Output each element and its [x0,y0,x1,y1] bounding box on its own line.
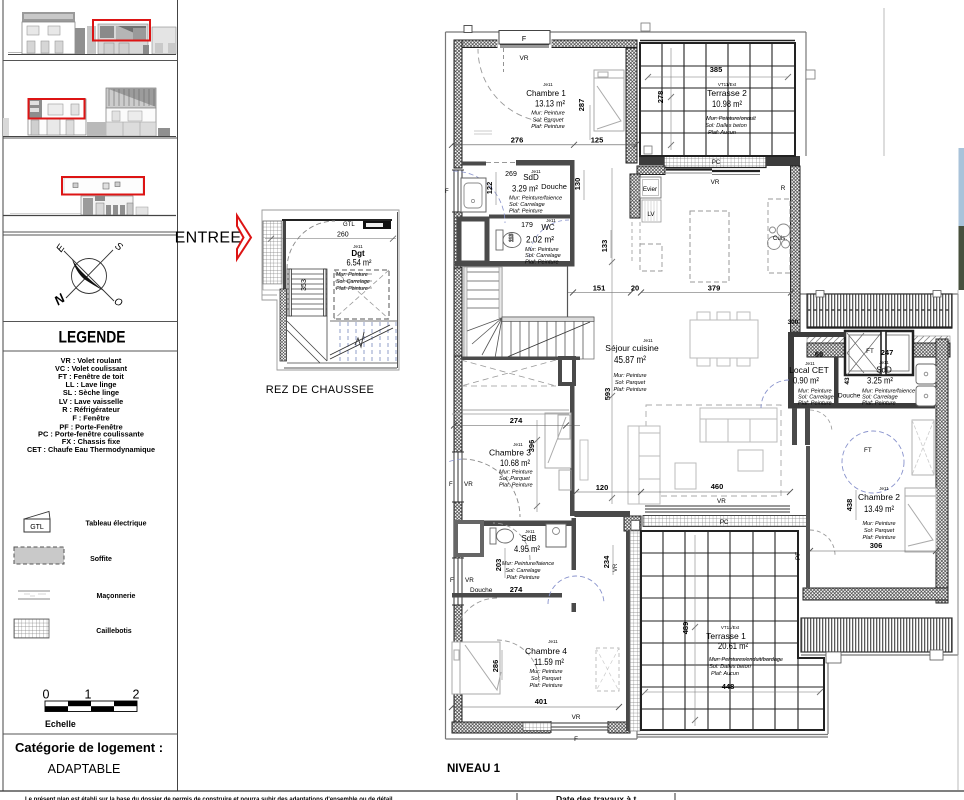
svg-text:Plaf: Peinture: Plaf: Peinture [862,401,896,407]
svg-text:247: 247 [881,348,894,357]
svg-text:Plaf: Peinture: Plaf: Peinture [525,260,559,266]
svg-text:10.98 m²: 10.98 m² [712,99,742,110]
svg-text:130: 130 [573,178,582,191]
svg-text:SL : Sèche linge: SL : Sèche linge [63,388,119,397]
svg-text:Sol: Dalles beton: Sol: Dalles beton [709,664,751,670]
svg-text:Je11: Je11 [879,360,889,365]
svg-text:401: 401 [535,697,548,706]
svg-text:385: 385 [710,65,723,74]
svg-text:43: 43 [844,377,851,385]
svg-text:274: 274 [510,585,523,594]
svg-text:FT: FT [864,447,872,454]
svg-text:Sol: Carrelage: Sol: Carrelage [509,202,545,208]
svg-text:Chambre 2: Chambre 2 [858,492,900,502]
svg-text:Plaf: Aucun: Plaf: Aucun [711,671,739,677]
svg-text:276: 276 [511,136,524,145]
svg-text:68: 68 [815,350,823,359]
svg-text:Plaf: Peinture: Plaf: Peinture [798,401,832,407]
svg-text:F: F [445,189,449,195]
svg-text:Sol:,Parquet: Sol:,Parquet [499,476,530,482]
svg-text:Douche: Douche [470,587,493,594]
svg-text:Sol: Parquet: Sol: Parquet [531,676,562,682]
svg-text:Mur: Peinture/ondult: Mur: Peinture/ondult [706,116,756,122]
svg-text:Sol: Carrelage: Sol: Carrelage [505,568,540,574]
svg-text:3.29 m²: 3.29 m² [512,184,538,195]
svg-text:133: 133 [600,240,609,253]
svg-text:VT11/Ext: VT11/Ext [721,625,740,630]
svg-text:F: F [450,578,454,584]
svg-text:Mur: Peinture: Mur: Peinture [862,521,895,527]
svg-text:Chambre 3: Chambre 3 [489,448,531,458]
svg-text:PC: PC [720,520,729,526]
svg-text:3.25 m²: 3.25 m² [867,376,893,387]
svg-text:Terrasse 1: Terrasse 1 [706,631,746,641]
svg-text:Sol: Carrelage: Sol: Carrelage [336,279,370,285]
svg-text:Plaf: Peinture: Plaf: Peinture [506,575,539,581]
svg-text:45.87 m²: 45.87 m² [614,355,647,366]
svg-text:Tableau électrique: Tableau électrique [86,521,147,528]
svg-text:Cuis.: Cuis. [773,235,788,242]
svg-text:13.49 m²: 13.49 m² [864,504,894,515]
svg-text:Plaf: Peinture: Plaf: Peinture [613,387,646,393]
svg-text:VR: VR [464,481,473,488]
svg-text:274: 274 [510,416,523,425]
svg-text:179: 179 [521,222,533,229]
svg-text:Terrasse 2: Terrasse 2 [707,88,747,98]
svg-text:Plaf: Peinture: Plaf: Peinture [531,124,565,130]
svg-text:GTL: GTL [30,524,44,531]
svg-text:FT: FT [866,348,874,355]
svg-text:VT11/Ext: VT11/Ext [718,82,737,87]
svg-text:ADAPTABLE: ADAPTABLE [48,762,121,776]
svg-text:SdD: SdD [523,173,539,182]
svg-text:F: F [449,482,453,488]
svg-text:2.02 m²: 2.02 m² [526,235,554,246]
svg-text:0: 0 [43,688,50,702]
svg-text:R: R [781,185,786,192]
svg-text:203: 203 [494,559,503,572]
svg-text:LV: LV [647,211,655,218]
svg-text:Je11: Je11 [879,486,889,491]
svg-text:Sol: Parquet: Sol: Parquet [533,118,564,124]
svg-text:Mur: Peinture: Mur: Peinture [531,111,565,117]
svg-text:460: 460 [711,482,724,491]
svg-text:234: 234 [602,555,611,568]
svg-text:PF: PF [795,552,802,560]
svg-text:Chambre 1: Chambre 1 [526,89,566,98]
svg-text:Plaf: Peinture: Plaf: Peinture [529,683,562,689]
svg-text:448: 448 [722,682,735,691]
svg-text:NIVEAU 1: NIVEAU 1 [447,763,501,775]
svg-text:151: 151 [593,284,606,293]
svg-text:Plaf: Aucun: Plaf: Aucun [708,130,736,136]
svg-text:ENTREE: ENTREE [175,230,242,247]
svg-text:Mur: Peinture/faience: Mur: Peinture/faience [502,561,554,567]
svg-text:1: 1 [85,688,92,702]
svg-text:286: 286 [491,660,500,673]
svg-text:Sol: Carrelage: Sol: Carrelage [525,253,561,259]
svg-text:SdB: SdB [521,534,536,543]
svg-text:Mur: Peinture: Mur: Peinture [613,373,646,379]
svg-text:120: 120 [596,483,609,492]
svg-text:Douche: Douche [838,393,861,400]
svg-text:Soffite: Soffite [90,556,112,563]
svg-text:VR: VR [717,498,726,505]
svg-text:VR: VR [711,179,720,186]
svg-text:Sol: Dalles beton: Sol: Dalles beton [705,123,747,129]
svg-text:300: 300 [788,319,799,326]
svg-text:Local CET: Local CET [789,365,829,375]
svg-text:10.68 m²: 10.68 m² [500,458,530,469]
svg-text:4.95 m²: 4.95 m² [514,544,540,555]
svg-text:PC: PC [712,160,721,166]
svg-text:LEGENDE: LEGENDE [59,329,126,347]
svg-text:Je11: Je11 [548,639,558,644]
svg-text:122: 122 [485,182,494,195]
svg-text:REZ DE CHAUSSEE: REZ DE CHAUSSEE [266,384,374,396]
svg-text:Plaf: Peinture: Plaf: Peinture [509,209,543,215]
svg-text:Plaf: Peinture: Plaf: Peinture [499,483,533,489]
svg-text:287: 287 [577,99,586,112]
svg-text:Douche: Douche [541,182,567,191]
svg-text:Mur: Peintures/enduit/bardage: Mur: Peintures/enduit/bardage [709,657,783,663]
svg-text:Echelle: Echelle [45,719,76,729]
svg-text:593: 593 [603,388,612,401]
svg-text:Chambre 4: Chambre 4 [525,646,567,656]
svg-text:F : Fenêtre: F : Fenêtre [72,414,109,423]
svg-text:VR: VR [465,577,474,584]
svg-text:438: 438 [845,499,854,512]
svg-text:Sol: Parquet: Sol: Parquet [864,528,895,534]
svg-text:F: F [574,736,578,743]
svg-text:Plaf: Peinture: Plaf: Peinture [336,286,368,292]
svg-text:Séjour cuisine: Séjour cuisine [605,343,659,353]
svg-text:GTL: GTL [343,222,355,228]
svg-text:Mur: Peinture/faience: Mur: Peinture/faience [509,196,562,202]
svg-text:113: 113 [509,234,515,242]
svg-text:WC: WC [541,223,555,232]
svg-text:379: 379 [708,284,721,293]
svg-text:Sol: Parquet: Sol: Parquet [615,380,646,386]
svg-text:Maçonnerie: Maçonnerie [97,593,136,600]
svg-text:SdD: SdD [876,366,892,375]
svg-text:Evier: Evier [643,186,657,193]
svg-text:Catégorie de logement :: Catégorie de logement : [15,740,163,755]
svg-text:Date des travaux à t: Date des travaux à t [556,794,636,800]
svg-text:Mur: Peinture: Mur: Peinture [499,470,533,476]
svg-text:20: 20 [631,284,639,293]
svg-text:F: F [522,36,526,43]
svg-text:278: 278 [656,91,665,104]
svg-text:VR: VR [613,563,619,572]
svg-text:Je11: Je11 [513,442,523,447]
svg-text:Caillebotis: Caillebotis [96,628,132,635]
svg-text:11.59 m²: 11.59 m² [534,657,564,668]
svg-text:VR: VR [572,714,581,721]
svg-text:Je11: Je11 [543,82,553,87]
svg-text:269: 269 [505,171,517,178]
svg-text:6.54 m²: 6.54 m² [347,258,372,268]
svg-text:20.61 m²: 20.61 m² [718,641,748,652]
svg-text:CET : Chaufe Eau Thermodynamiq: CET : Chaufe Eau Thermodynamique [27,445,155,454]
svg-text:Mur: Peinture: Mur: Peinture [336,272,368,278]
svg-text:2: 2 [133,688,140,702]
svg-text:396: 396 [527,440,536,453]
svg-text:353: 353 [301,279,308,291]
svg-text:VR: VR [519,55,528,62]
svg-text:306: 306 [870,541,883,550]
svg-text:0.90 m²: 0.90 m² [793,376,819,387]
svg-text:260: 260 [337,232,349,239]
svg-text:Mur: Peinture: Mur: Peinture [529,669,562,675]
svg-text:489: 489 [681,622,690,635]
svg-text:125: 125 [591,136,604,145]
svg-text:13.13 m²: 13.13 m² [535,99,565,110]
